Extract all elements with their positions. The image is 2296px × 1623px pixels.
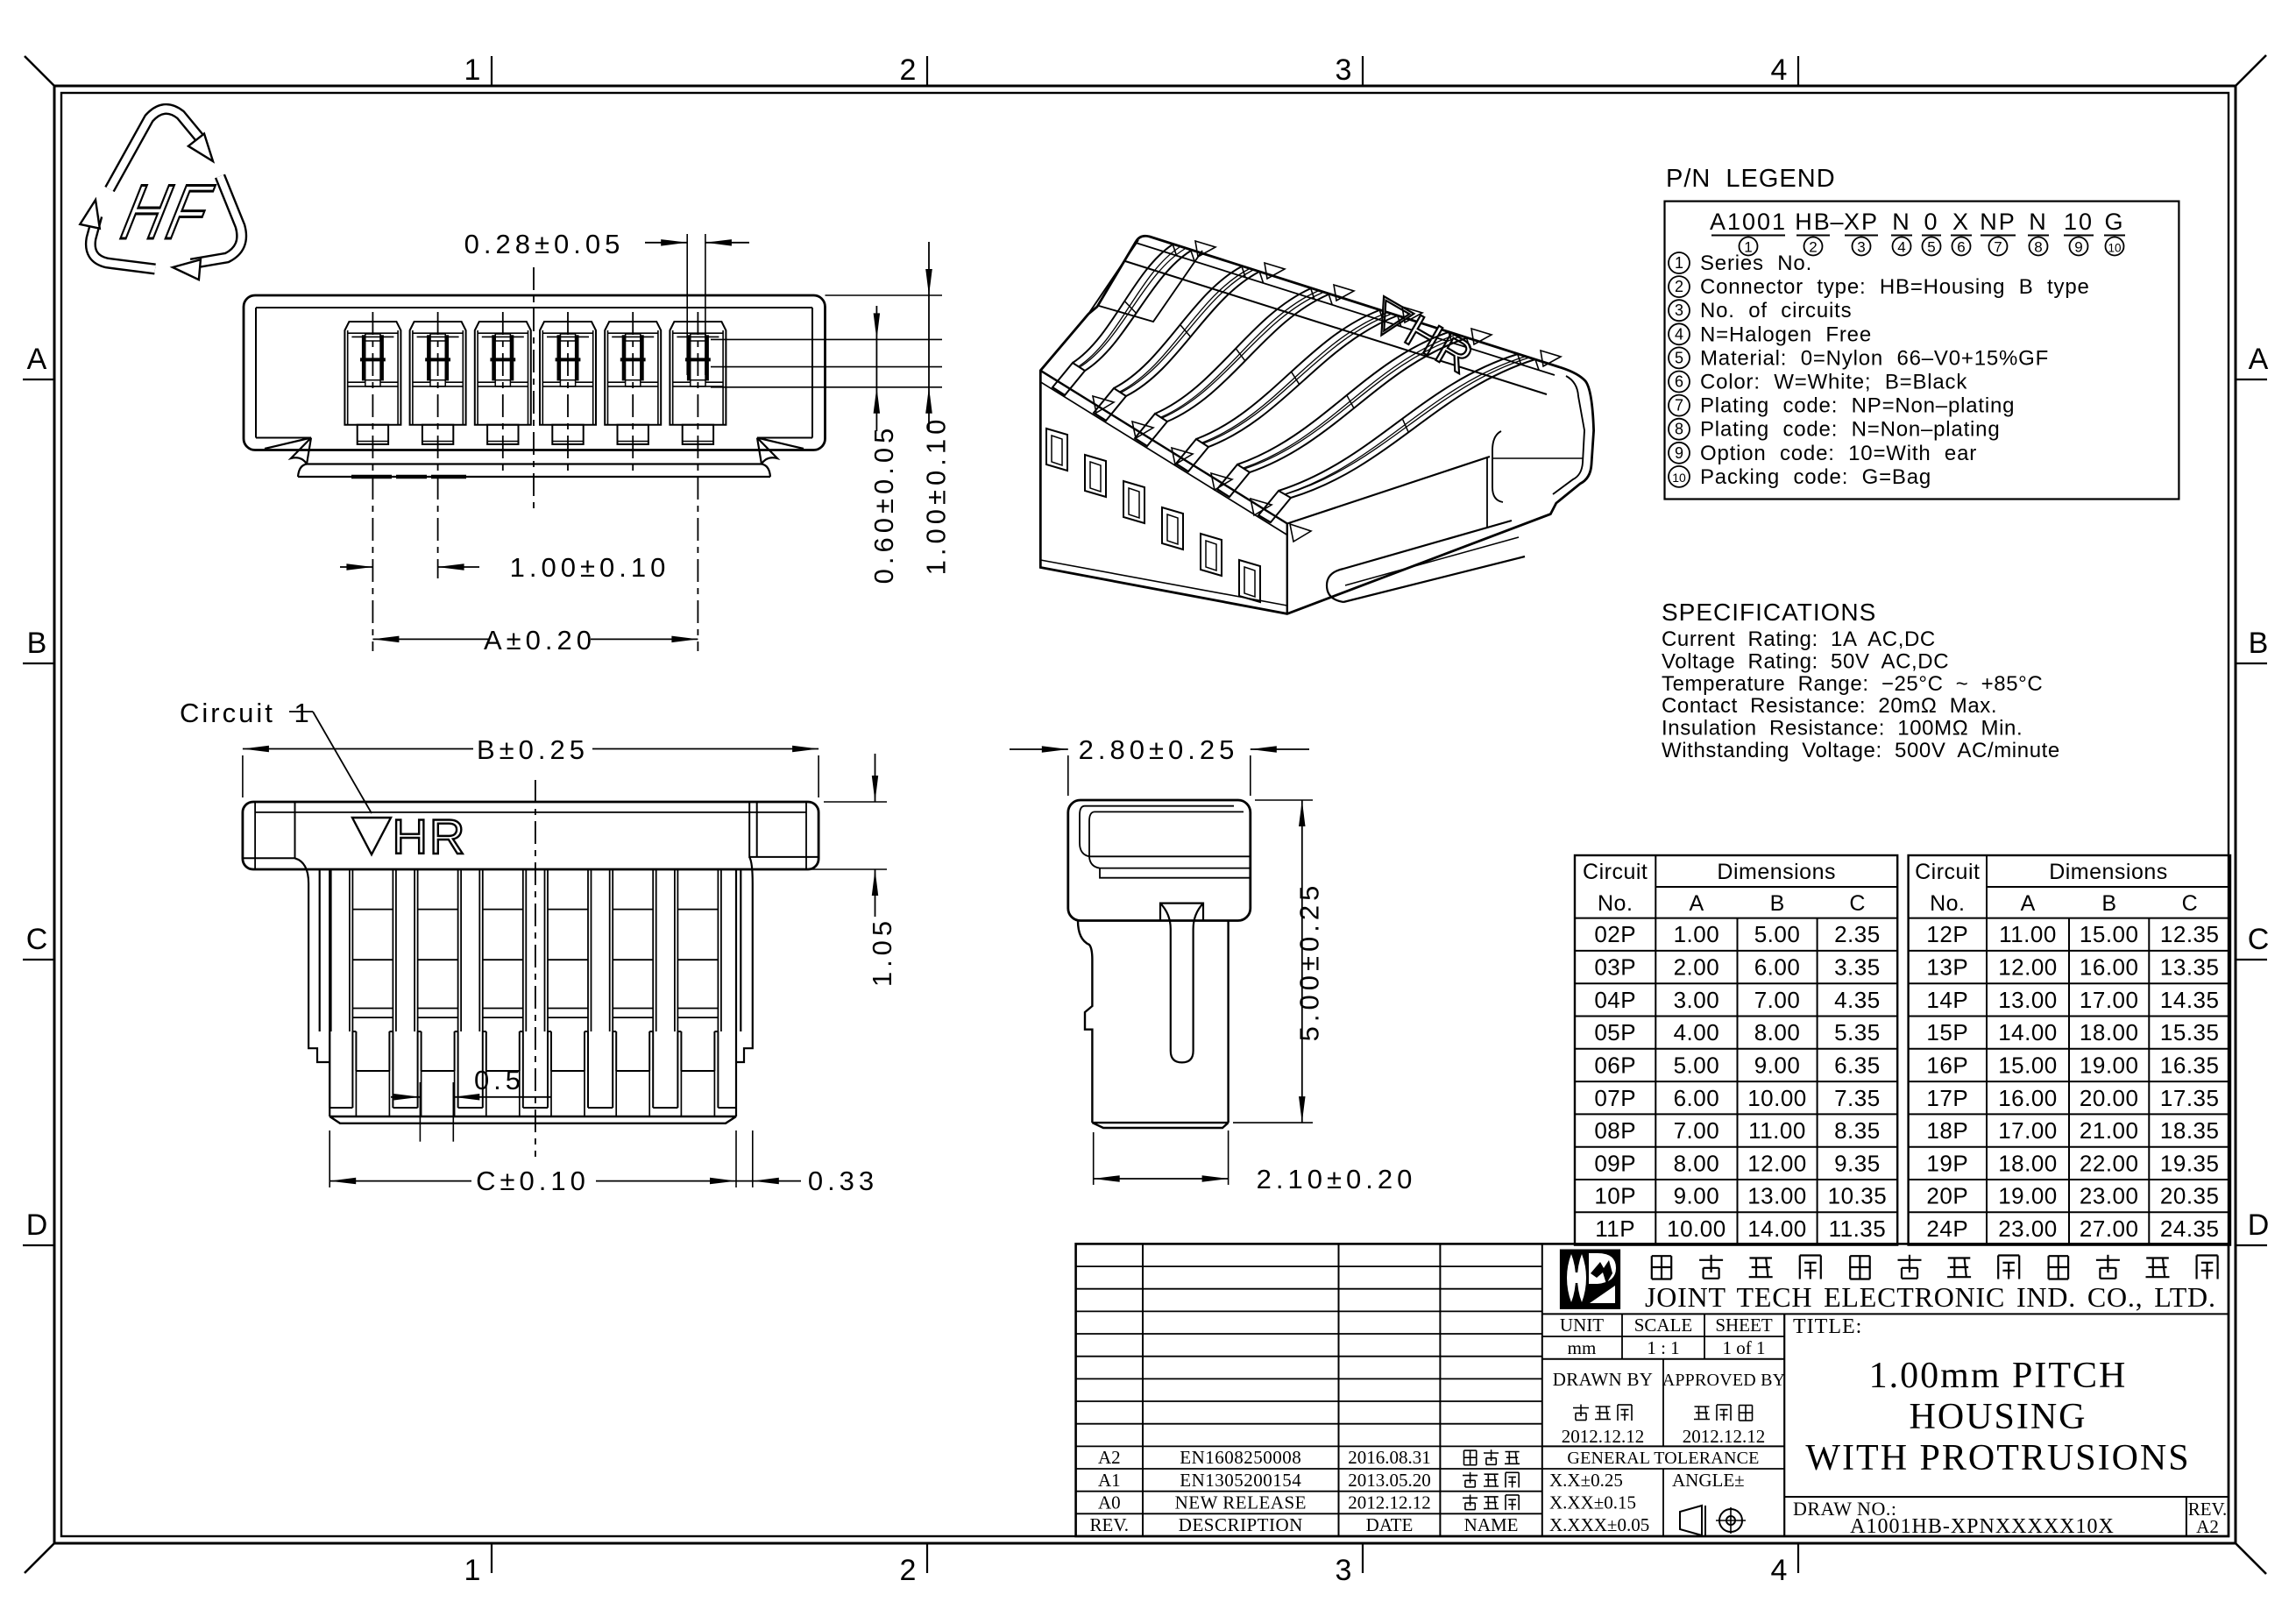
svg-text:No.: No. xyxy=(1598,891,1633,916)
svg-text:–: – xyxy=(1830,209,1843,235)
svg-text:20.35: 20.35 xyxy=(2160,1183,2220,1209)
svg-text:X: X xyxy=(1952,209,1970,235)
svg-text:X.X±0.25: X.X±0.25 xyxy=(1549,1470,1623,1491)
svg-text:Voltage Rating: 50V AC,DC: Voltage Rating: 50V AC,DC xyxy=(1662,649,1949,673)
svg-text:X.XXX±0.05: X.XXX±0.05 xyxy=(1549,1514,1649,1535)
svg-text:11.00: 11.00 xyxy=(1748,1117,1806,1144)
svg-text:12.00: 12.00 xyxy=(1998,954,2058,981)
svg-text:10: 10 xyxy=(2064,209,2094,235)
svg-text:9.00: 9.00 xyxy=(1754,1052,1801,1079)
svg-text:B: B xyxy=(2249,627,2269,660)
svg-text:12P: 12P xyxy=(1926,921,1968,947)
svg-text:C: C xyxy=(26,923,48,956)
svg-text:A: A xyxy=(27,343,47,376)
svg-text:15.00: 15.00 xyxy=(1998,1052,2058,1079)
svg-text:3.35: 3.35 xyxy=(1834,954,1881,981)
svg-text:1: 1 xyxy=(1675,254,1683,272)
svg-text:XP: XP xyxy=(1844,209,1879,235)
svg-text:19.00: 19.00 xyxy=(1998,1183,2058,1209)
svg-text:5.00±0.25: 5.00±0.25 xyxy=(1293,882,1324,1042)
svg-text:D: D xyxy=(26,1208,48,1242)
svg-text:Series No.: Series No. xyxy=(1700,252,1812,275)
svg-text:Withstanding Voltage: 500V AC/: Withstanding Voltage: 500V AC/minute xyxy=(1662,739,2060,762)
svg-text:Current Rating: 1A AC,DC: Current Rating: 1A AC,DC xyxy=(1662,627,1936,651)
svg-text:2012.12.12: 2012.12.12 xyxy=(1348,1492,1431,1513)
svg-text:16P: 16P xyxy=(1926,1052,1968,1079)
svg-text:DATE: DATE xyxy=(1366,1514,1414,1535)
svg-text:1.00±0.10: 1.00±0.10 xyxy=(921,415,952,576)
svg-text:HR: HR xyxy=(393,809,467,864)
svg-text:2.35: 2.35 xyxy=(1834,921,1881,947)
svg-text:SHEET: SHEET xyxy=(1715,1315,1773,1336)
svg-text:7: 7 xyxy=(1675,397,1683,415)
svg-text:10.00: 10.00 xyxy=(1747,1085,1807,1111)
svg-text:11P: 11P xyxy=(1595,1215,1635,1242)
svg-text:20P: 20P xyxy=(1926,1183,1968,1209)
svg-text:9.00: 9.00 xyxy=(1674,1183,1720,1209)
svg-text:05P: 05P xyxy=(1594,1019,1636,1045)
svg-text:Connector type: HB=Housing B t: Connector type: HB=Housing B type xyxy=(1700,275,2090,299)
svg-text:EN1608250008: EN1608250008 xyxy=(1180,1447,1301,1468)
svg-text:B: B xyxy=(27,627,47,660)
svg-text:14P: 14P xyxy=(1926,987,1968,1013)
svg-text:WITH PROTRUSIONS: WITH PROTRUSIONS xyxy=(1805,1438,2190,1478)
svg-text:18.00: 18.00 xyxy=(1998,1150,2058,1176)
svg-text:2.00: 2.00 xyxy=(1674,954,1720,981)
svg-text:NP: NP xyxy=(1980,209,2016,235)
svg-text:10: 10 xyxy=(1672,471,1686,485)
svg-text:5: 5 xyxy=(1927,239,1935,256)
svg-text:A1: A1 xyxy=(1098,1470,1121,1491)
svg-text:8.00: 8.00 xyxy=(1674,1150,1720,1176)
svg-text:10.00: 10.00 xyxy=(1667,1215,1726,1242)
svg-text:2012.12.12: 2012.12.12 xyxy=(1562,1426,1645,1447)
svg-text:5.00: 5.00 xyxy=(1754,921,1801,947)
svg-text:No. of circuits: No. of circuits xyxy=(1700,299,1852,322)
svg-text:mm: mm xyxy=(1568,1337,1597,1358)
svg-text:C: C xyxy=(2248,923,2270,956)
svg-text:SCALE: SCALE xyxy=(1634,1315,1693,1336)
svg-text:NAME: NAME xyxy=(1464,1514,1519,1535)
svg-text:6.00: 6.00 xyxy=(1754,954,1801,981)
svg-text:P/N LEGEND: P/N LEGEND xyxy=(1666,165,1836,193)
svg-text:2016.08.31: 2016.08.31 xyxy=(1348,1447,1431,1468)
svg-text:27.00: 27.00 xyxy=(2080,1215,2139,1242)
svg-text:13P: 13P xyxy=(1926,954,1968,981)
svg-text:A: A xyxy=(1690,891,1704,916)
svg-text:GENERAL TOLERANCE: GENERAL TOLERANCE xyxy=(1567,1449,1759,1468)
svg-text:Plating code: N=Non–plating: Plating code: N=Non–plating xyxy=(1700,418,2000,442)
svg-text:Temperature Range: −25°C ~ +85: Temperature Range: −25°C ~ +85°C xyxy=(1662,672,2043,696)
svg-text:3.00: 3.00 xyxy=(1674,987,1720,1013)
svg-text:11.35: 11.35 xyxy=(1829,1215,1887,1242)
svg-text:19.35: 19.35 xyxy=(2160,1150,2220,1176)
svg-text:Color: W=White; B=Black: Color: W=White; B=Black xyxy=(1700,371,1967,394)
svg-text:2: 2 xyxy=(900,53,917,87)
svg-text:4.00: 4.00 xyxy=(1674,1019,1720,1045)
svg-text:22.00: 22.00 xyxy=(2080,1150,2139,1176)
svg-text:C: C xyxy=(1849,891,1865,916)
svg-text:24.35: 24.35 xyxy=(2160,1215,2220,1242)
svg-text:17.00: 17.00 xyxy=(1998,1117,2058,1144)
svg-text:5.35: 5.35 xyxy=(1834,1019,1881,1045)
svg-text:REV.: REV. xyxy=(1090,1514,1130,1535)
svg-text:6.35: 6.35 xyxy=(1834,1052,1881,1079)
svg-text:06P: 06P xyxy=(1594,1052,1636,1079)
svg-text:03P: 03P xyxy=(1594,954,1636,981)
svg-text:C: C xyxy=(2182,891,2198,916)
svg-text:ANGLE±: ANGLE± xyxy=(1672,1470,1745,1491)
svg-text:2: 2 xyxy=(1675,278,1683,295)
svg-text:3: 3 xyxy=(1857,239,1865,256)
svg-text:16.35: 16.35 xyxy=(2160,1052,2220,1079)
svg-text:17.00: 17.00 xyxy=(2080,987,2139,1013)
svg-text:2.10±0.20: 2.10±0.20 xyxy=(1257,1164,1417,1194)
svg-text:13.35: 13.35 xyxy=(2160,954,2220,981)
svg-text:14.00: 14.00 xyxy=(1747,1215,1807,1242)
svg-text:Option code: 10=With ear: Option code: 10=With ear xyxy=(1700,442,1977,465)
svg-text:11.00: 11.00 xyxy=(1999,921,2057,947)
svg-text:Circuit: Circuit xyxy=(1583,860,1648,884)
svg-text:6: 6 xyxy=(1957,239,1965,256)
svg-text:HOUSING: HOUSING xyxy=(1910,1397,2087,1437)
svg-text:Circuit: Circuit xyxy=(1915,860,1980,884)
svg-text:17.35: 17.35 xyxy=(2160,1085,2220,1111)
svg-text:4: 4 xyxy=(1675,325,1683,343)
svg-text:X.XX±0.15: X.XX±0.15 xyxy=(1549,1492,1636,1513)
svg-text:19.00: 19.00 xyxy=(2080,1052,2139,1079)
svg-text:B: B xyxy=(1770,891,1785,916)
svg-text:5: 5 xyxy=(1675,349,1683,366)
svg-text:3: 3 xyxy=(1336,53,1352,87)
svg-text:10.35: 10.35 xyxy=(1828,1183,1888,1209)
svg-text:D: D xyxy=(2248,1208,2270,1242)
svg-text:23.00: 23.00 xyxy=(2080,1183,2139,1209)
svg-text:8: 8 xyxy=(1675,421,1683,438)
svg-text:14.35: 14.35 xyxy=(2160,987,2220,1013)
svg-text:1: 1 xyxy=(464,53,481,87)
svg-text:A: A xyxy=(2021,891,2036,916)
svg-text:09P: 09P xyxy=(1594,1150,1636,1176)
svg-text:A: A xyxy=(2249,343,2269,376)
svg-text:9.35: 9.35 xyxy=(1834,1150,1881,1176)
svg-text:8.35: 8.35 xyxy=(1834,1117,1881,1144)
svg-text:9: 9 xyxy=(2074,239,2082,256)
svg-text:3: 3 xyxy=(1675,301,1683,319)
svg-text:16.00: 16.00 xyxy=(1998,1085,2058,1111)
svg-text:Plating code: NP=Non–plating: Plating code: NP=Non–plating xyxy=(1700,394,2015,418)
svg-text:18.00: 18.00 xyxy=(2080,1019,2139,1045)
svg-text:10: 10 xyxy=(2108,242,2121,255)
svg-text:N=Halogen Free: N=Halogen Free xyxy=(1700,322,1872,346)
svg-text:N: N xyxy=(1892,209,1911,235)
svg-text:14.00: 14.00 xyxy=(1998,1019,2058,1045)
svg-text:07P: 07P xyxy=(1594,1085,1636,1111)
svg-text:A1001: A1001 xyxy=(1710,209,1787,235)
svg-text:7.00: 7.00 xyxy=(1754,987,1801,1013)
svg-text:A±0.20: A±0.20 xyxy=(484,625,596,656)
svg-text:C±0.10: C±0.10 xyxy=(476,1166,590,1196)
svg-text:1.00: 1.00 xyxy=(1674,921,1720,947)
svg-text:TITLE:: TITLE: xyxy=(1793,1315,1862,1338)
svg-text:Dimensions: Dimensions xyxy=(2049,860,2168,884)
svg-text:JOINT TECH ELECTRONIC IND. CO.: JOINT TECH ELECTRONIC IND. CO., LTD. xyxy=(1645,1281,2216,1313)
svg-text:7: 7 xyxy=(1994,239,2002,256)
svg-text:18P: 18P xyxy=(1926,1117,1968,1144)
svg-text:3: 3 xyxy=(1336,1554,1352,1587)
svg-text:4: 4 xyxy=(1771,1554,1788,1587)
svg-text:1.00mm PITCH: 1.00mm PITCH xyxy=(1869,1356,2128,1396)
svg-text:N: N xyxy=(2029,209,2048,235)
svg-text:NEW RELEASE: NEW RELEASE xyxy=(1175,1492,1307,1513)
svg-text:Dimensions: Dimensions xyxy=(1717,860,1836,884)
svg-text:12.00: 12.00 xyxy=(1747,1150,1807,1176)
svg-text:08P: 08P xyxy=(1594,1117,1636,1144)
svg-text:No.: No. xyxy=(1930,891,1965,916)
svg-text:7.00: 7.00 xyxy=(1674,1117,1720,1144)
svg-text:1 : 1: 1 : 1 xyxy=(1647,1337,1679,1358)
svg-text:1.00±0.10: 1.00±0.10 xyxy=(510,552,670,583)
svg-text:HB: HB xyxy=(1795,209,1832,235)
svg-text:0.60±0.05: 0.60±0.05 xyxy=(868,424,899,585)
svg-text:8.00: 8.00 xyxy=(1754,1019,1801,1045)
svg-text:12.35: 12.35 xyxy=(2160,921,2220,947)
svg-text:8: 8 xyxy=(2034,239,2042,256)
svg-text:Material: 0=Nylon 66–V0+15%GF: Material: 0=Nylon 66–V0+15%GF xyxy=(1700,346,2049,370)
svg-text:UNIT: UNIT xyxy=(1560,1315,1604,1336)
svg-text:19P: 19P xyxy=(1926,1150,1968,1176)
svg-text:A2: A2 xyxy=(2196,1516,2219,1537)
svg-text:16.00: 16.00 xyxy=(2080,954,2139,981)
svg-text:2012.12.12: 2012.12.12 xyxy=(1683,1426,1766,1447)
svg-text:4.35: 4.35 xyxy=(1834,987,1881,1013)
svg-text:02P: 02P xyxy=(1594,921,1636,947)
svg-text:2.80±0.25: 2.80±0.25 xyxy=(1079,734,1239,765)
svg-text:Contact Resistance: 20mΩ Max.: Contact Resistance: 20mΩ Max. xyxy=(1662,694,1997,718)
svg-text:Insulation Resistance: 100MΩ M: Insulation Resistance: 100MΩ Min. xyxy=(1662,717,2023,741)
svg-text:17P: 17P xyxy=(1926,1085,1968,1111)
svg-text:1 of 1: 1 of 1 xyxy=(1723,1337,1766,1358)
svg-text:A2: A2 xyxy=(1098,1447,1121,1468)
svg-text:0.5: 0.5 xyxy=(474,1065,525,1095)
svg-text:6.00: 6.00 xyxy=(1674,1085,1720,1111)
svg-text:15.35: 15.35 xyxy=(2160,1019,2220,1045)
svg-text:24P: 24P xyxy=(1926,1215,1968,1242)
svg-text:4: 4 xyxy=(1897,239,1905,256)
svg-text:Packing code: G=Bag: Packing code: G=Bag xyxy=(1700,465,1931,489)
svg-text:7.35: 7.35 xyxy=(1834,1085,1881,1111)
svg-text:13.00: 13.00 xyxy=(1998,987,2058,1013)
svg-text:21.00: 21.00 xyxy=(2080,1117,2139,1144)
svg-text:23.00: 23.00 xyxy=(1998,1215,2058,1242)
svg-text:04P: 04P xyxy=(1594,987,1636,1013)
svg-text:1.05: 1.05 xyxy=(867,917,897,987)
svg-text:0: 0 xyxy=(1924,209,1938,235)
svg-text:2: 2 xyxy=(900,1554,917,1587)
svg-text:5.00: 5.00 xyxy=(1674,1052,1720,1079)
svg-text:18.35: 18.35 xyxy=(2160,1117,2220,1144)
svg-text:4: 4 xyxy=(1771,53,1788,87)
svg-text:APPROVED BY: APPROVED BY xyxy=(1662,1371,1786,1390)
svg-text:6: 6 xyxy=(1675,373,1683,391)
svg-text:0.33: 0.33 xyxy=(808,1166,878,1196)
svg-text:9: 9 xyxy=(1675,444,1683,462)
svg-text:DRAWN BY: DRAWN BY xyxy=(1553,1369,1653,1390)
svg-text:B±0.25: B±0.25 xyxy=(477,734,589,765)
svg-text:20.00: 20.00 xyxy=(2080,1085,2139,1111)
svg-text:15.00: 15.00 xyxy=(2080,921,2139,947)
svg-text:EN1305200154: EN1305200154 xyxy=(1180,1470,1301,1491)
svg-text:13.00: 13.00 xyxy=(1747,1183,1807,1209)
svg-text:10P: 10P xyxy=(1594,1183,1636,1209)
svg-text:A0: A0 xyxy=(1098,1492,1121,1513)
svg-text:B: B xyxy=(2101,891,2116,916)
svg-text:1: 1 xyxy=(464,1554,481,1587)
svg-text:A1001HB-XPNXXXXX10X: A1001HB-XPNXXXXX10X xyxy=(1850,1515,2115,1538)
svg-text:G: G xyxy=(2104,209,2124,235)
svg-text:0.28±0.05: 0.28±0.05 xyxy=(464,229,625,259)
svg-text:Circuit 1: Circuit 1 xyxy=(180,698,312,728)
svg-text:2013.05.20: 2013.05.20 xyxy=(1348,1470,1431,1491)
svg-text:15P: 15P xyxy=(1926,1019,1968,1045)
svg-text:SPECIFICATIONS: SPECIFICATIONS xyxy=(1662,599,1876,626)
svg-text:DESCRIPTION: DESCRIPTION xyxy=(1179,1514,1303,1535)
